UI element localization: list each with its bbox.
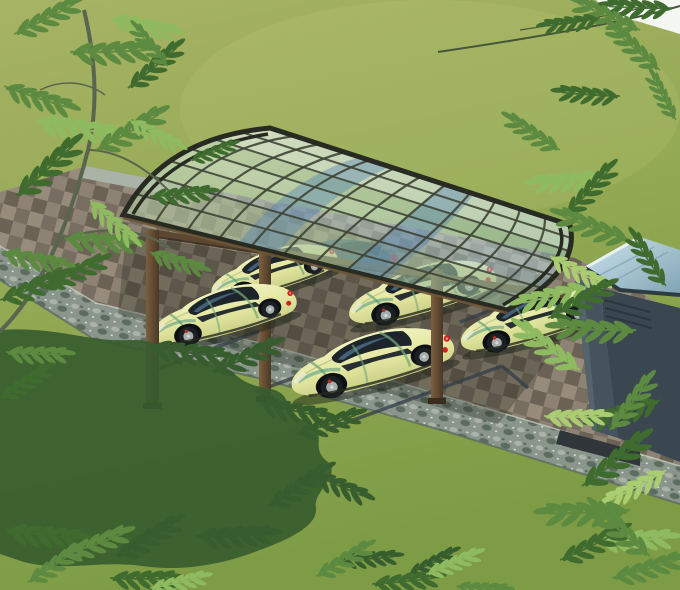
carport-garden-render (0, 0, 680, 590)
render-viewport (0, 0, 680, 590)
